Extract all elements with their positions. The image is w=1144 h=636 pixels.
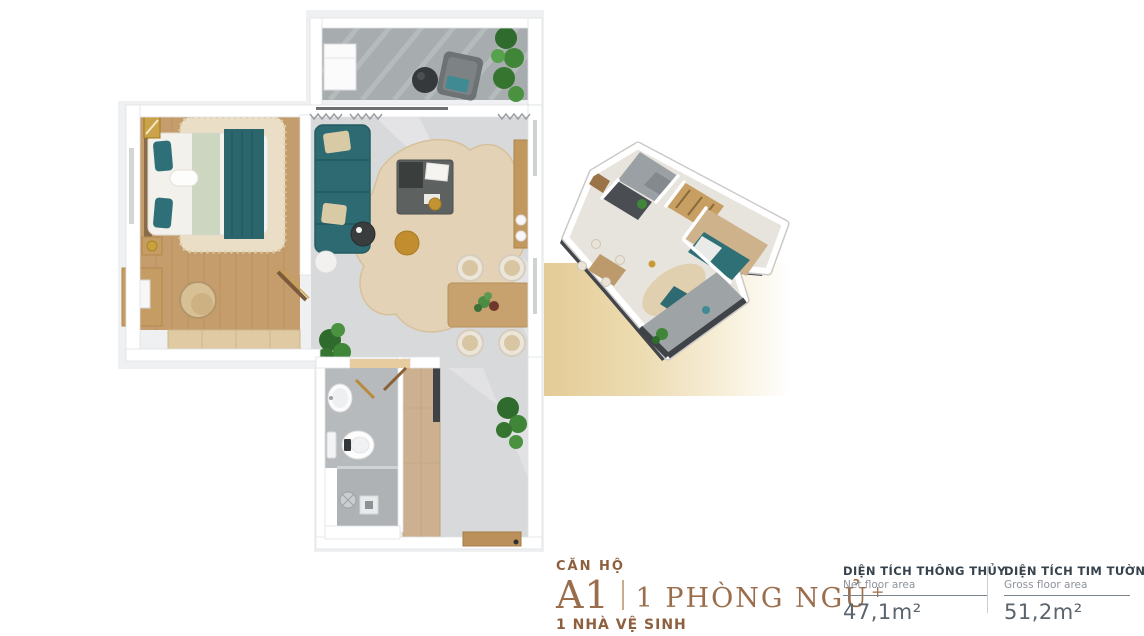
coffee-table bbox=[397, 160, 453, 214]
gross-area-column: DIỆN TÍCH TIM TƯỜNG Gross floor area 51,… bbox=[1004, 564, 1130, 624]
sink bbox=[328, 384, 352, 412]
brochure-canvas: CĂN HỘ A1 1 PHÒNG NGỦ+ 1 NHÀ VỆ SINH DIỆ… bbox=[0, 0, 1144, 636]
floor-drain bbox=[365, 501, 373, 509]
balcony bbox=[298, 25, 545, 102]
wall-console bbox=[514, 140, 529, 248]
bathroom-count-label: 1 NHÀ VỆ SINH bbox=[556, 617, 886, 633]
unit-caption: CĂN HỘ A1 1 PHÒNG NGỦ+ 1 NHÀ VỆ SINH bbox=[556, 559, 886, 633]
bedroom bbox=[122, 115, 309, 349]
unit-code: A1 bbox=[556, 575, 610, 615]
iso-plant bbox=[637, 199, 647, 209]
shower-glass bbox=[337, 466, 398, 469]
gold-ottoman bbox=[395, 231, 419, 255]
bedside-lamp bbox=[147, 241, 157, 251]
washing-machine bbox=[324, 44, 356, 90]
net-area-title: DIỆN TÍCH THÔNG THỦY bbox=[843, 564, 987, 578]
bathroom bbox=[325, 368, 398, 530]
toilet bbox=[327, 431, 374, 459]
net-area-rule bbox=[843, 595, 987, 596]
area-table: DIỆN TÍCH THÔNG THỦY Net floor area 47,1… bbox=[843, 564, 1130, 624]
floor-plan-3d-drawing bbox=[556, 138, 794, 394]
gross-area-subtitle: Gross floor area bbox=[1004, 579, 1130, 591]
gross-area-rule bbox=[1004, 595, 1130, 596]
unit-type-label: CĂN HỘ bbox=[556, 559, 886, 574]
balcony-table bbox=[412, 67, 438, 93]
double-bed bbox=[144, 129, 268, 239]
shower-head bbox=[340, 492, 356, 508]
entrance-door bbox=[463, 532, 521, 546]
net-area-subtitle: Net floor area bbox=[843, 579, 987, 591]
net-area-column: DIỆN TÍCH THÔNG THỦY Net floor area 47,1… bbox=[843, 564, 987, 624]
floor-plan-2d-drawing bbox=[118, 8, 545, 554]
area-table-divider bbox=[987, 566, 988, 613]
kitchen-appliances bbox=[433, 366, 440, 422]
kitchen bbox=[403, 362, 440, 538]
wardrobe-strip bbox=[168, 330, 300, 349]
gross-area-title: DIỆN TÍCH TIM TƯỜNG bbox=[1004, 564, 1130, 578]
caption-divider bbox=[622, 580, 624, 610]
unit-title-row: A1 1 PHÒNG NGỦ+ bbox=[556, 575, 886, 615]
desk-chair bbox=[180, 282, 216, 318]
gross-area-value: 51,2m² bbox=[1004, 601, 1130, 624]
net-area-value: 47,1m² bbox=[843, 601, 987, 624]
round-tray-table bbox=[351, 222, 375, 246]
floor-plan-2d bbox=[118, 8, 545, 554]
side-table bbox=[315, 251, 337, 273]
floor-plan-3d bbox=[556, 138, 794, 394]
